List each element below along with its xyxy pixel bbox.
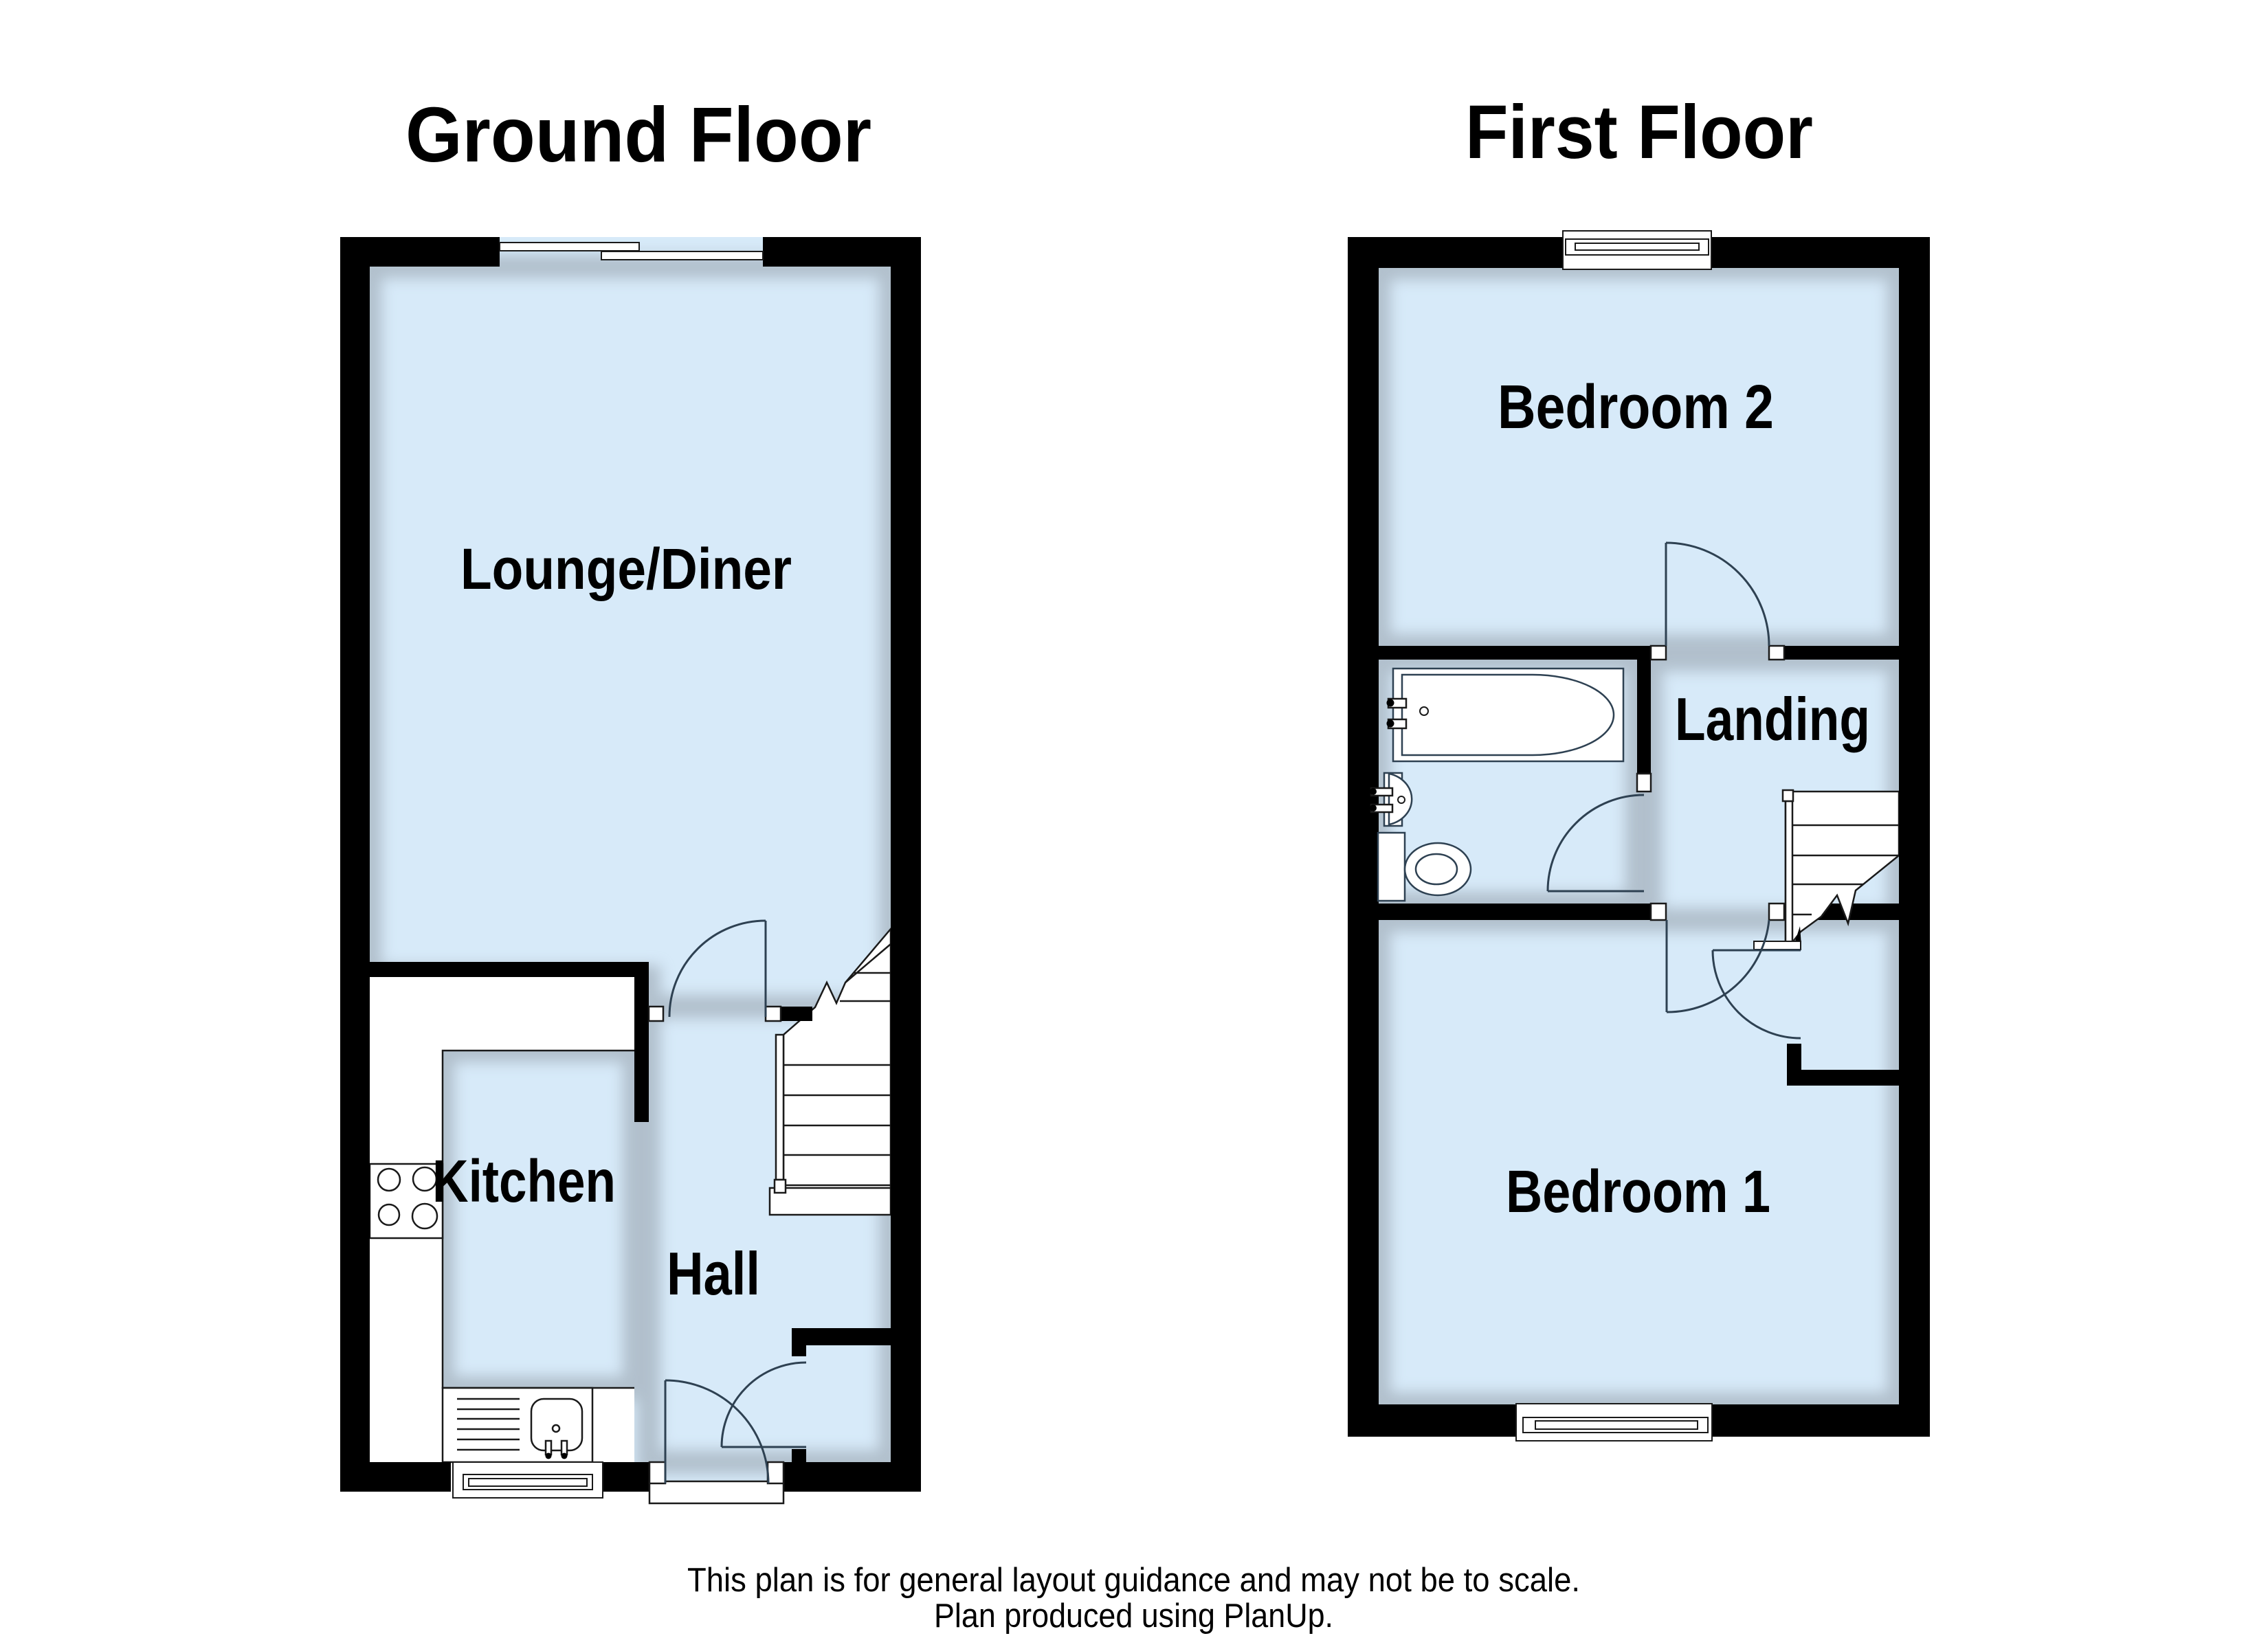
svg-text:Landing: Landing (1675, 685, 1870, 753)
svg-text:Lounge/Diner: Lounge/Diner (460, 537, 792, 601)
svg-text:First Floor: First Floor (1465, 90, 1813, 175)
svg-text:This plan is for general layou: This plan is for general layout guidance… (687, 1562, 1580, 1599)
svg-text:Plan produced using PlanUp.: Plan produced using PlanUp. (934, 1597, 1333, 1635)
svg-text:Kitchen: Kitchen (432, 1148, 616, 1215)
svg-text:Hall: Hall (667, 1239, 760, 1308)
svg-text:Bedroom 1: Bedroom 1 (1506, 1158, 1770, 1225)
svg-text:Bedroom 2: Bedroom 2 (1498, 373, 1774, 442)
svg-text:Ground Floor: Ground Floor (405, 91, 871, 178)
